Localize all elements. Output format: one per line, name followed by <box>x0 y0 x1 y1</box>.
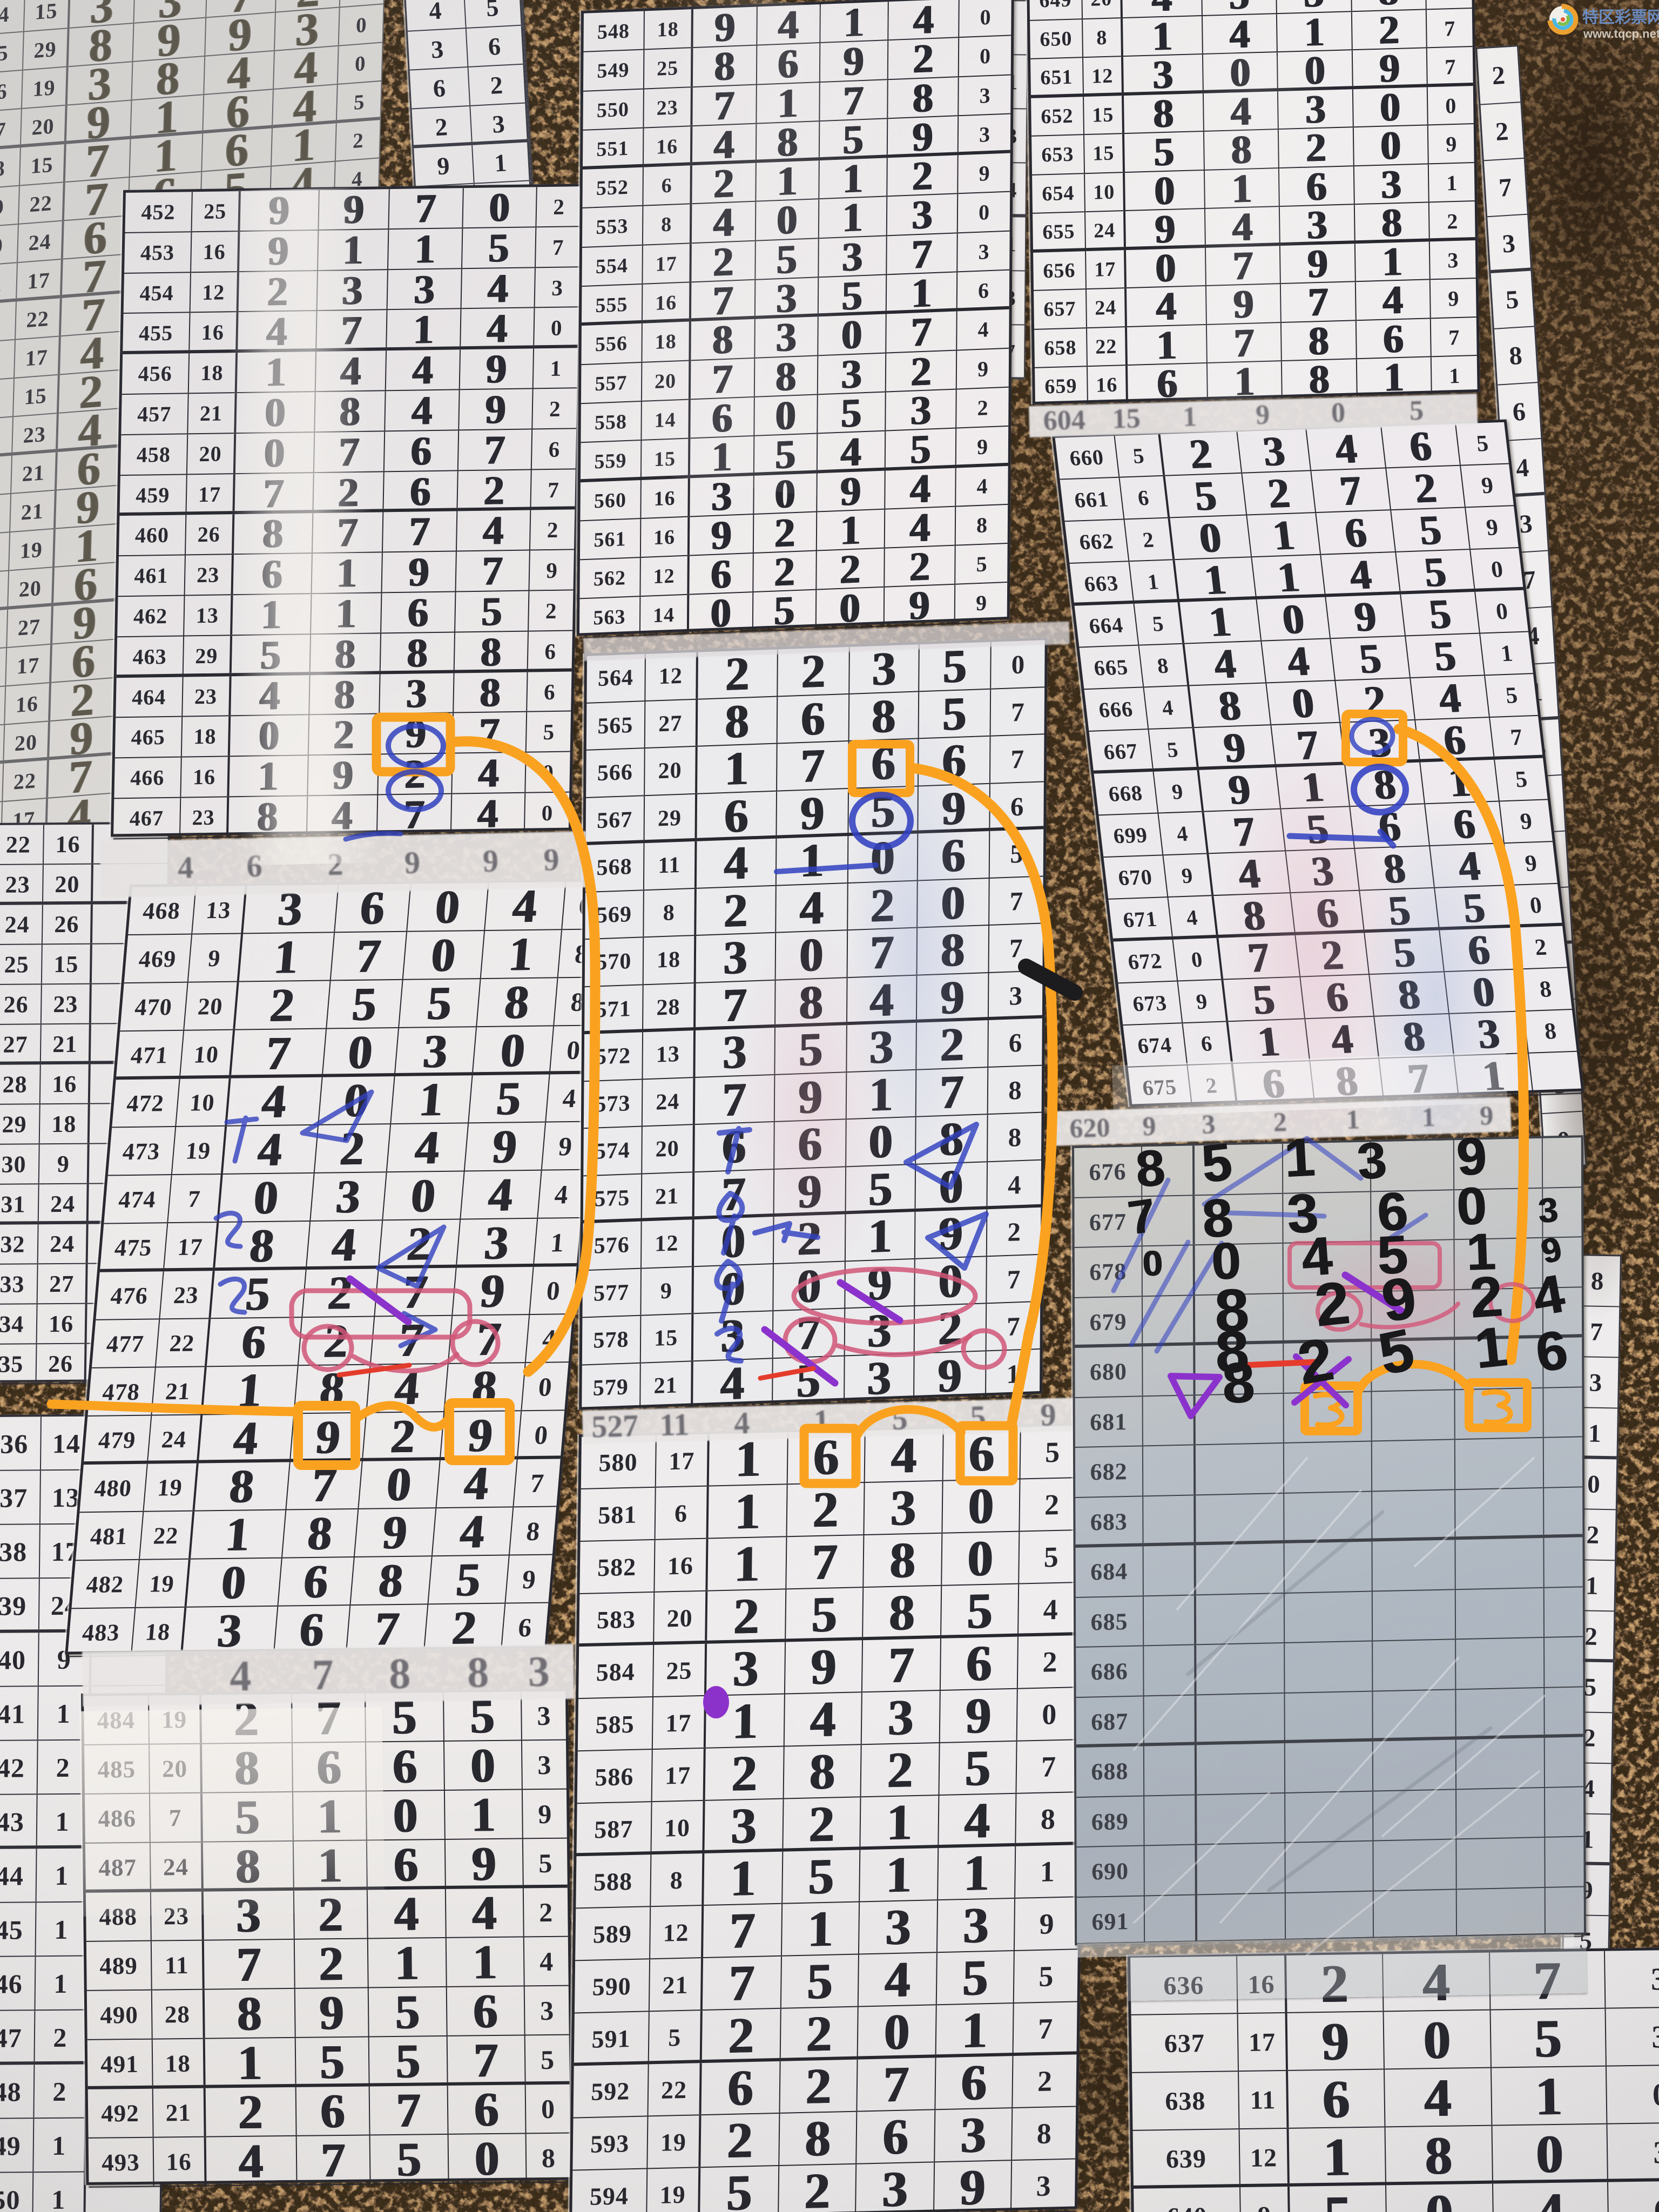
svg-text:特区彩票网: 特区彩票网 <box>1582 9 1659 26</box>
svg-text:www.tqcp.net: www.tqcp.net <box>1583 27 1659 41</box>
